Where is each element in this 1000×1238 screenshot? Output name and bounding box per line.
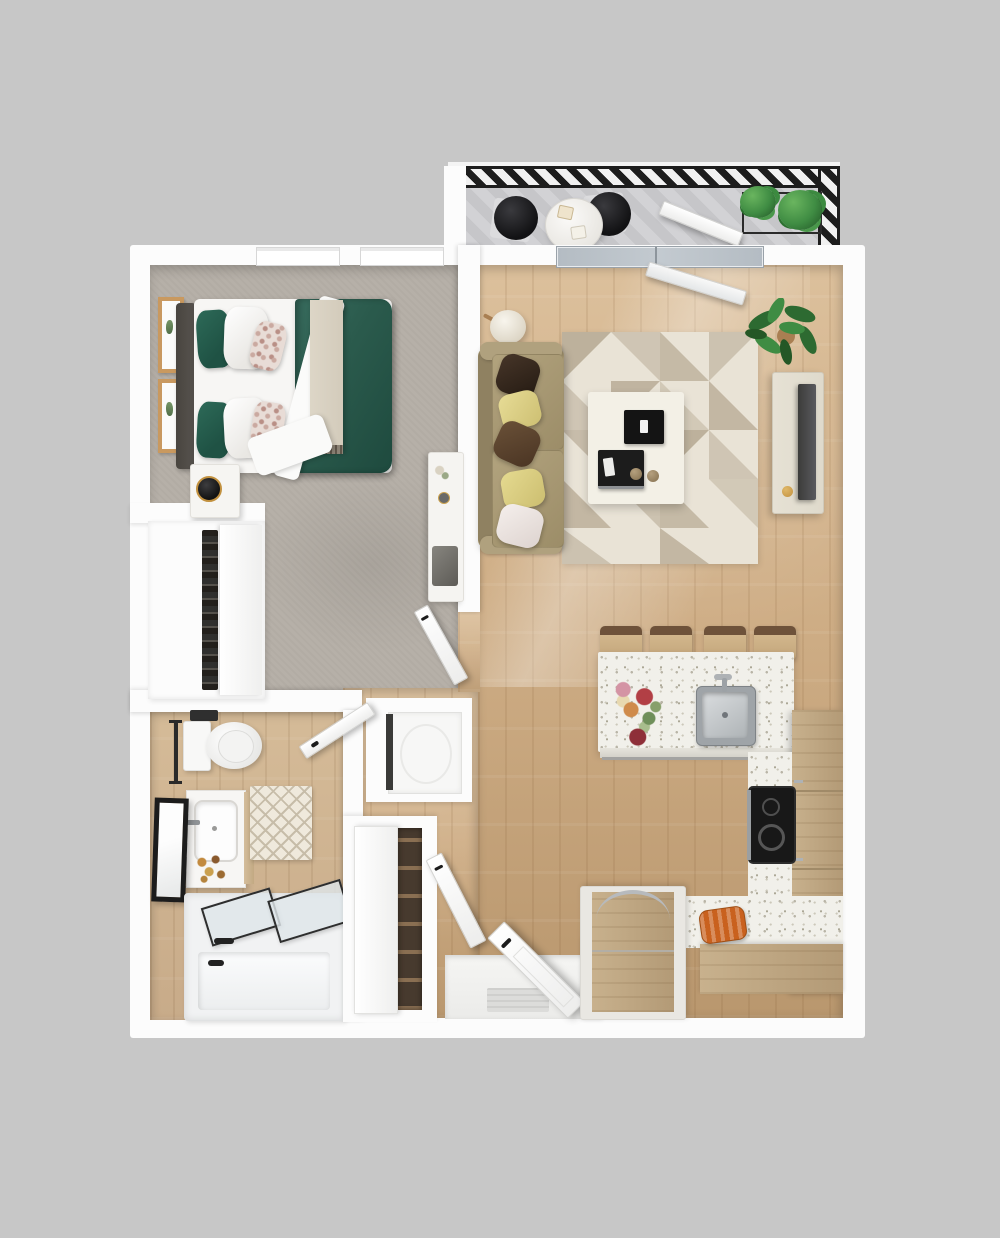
refrigerator-door-line [592, 950, 674, 952]
kitchen-faucet-stem [722, 678, 727, 692]
closet-door-panel [220, 525, 262, 695]
balcony [440, 158, 850, 258]
door-handle [421, 615, 429, 622]
counter-flower-bouquet [612, 678, 668, 750]
tv [798, 384, 816, 500]
door-handle [501, 937, 512, 948]
linen-closet-shelves [396, 828, 422, 1010]
bistro-chair [494, 196, 538, 240]
toilet-seat [218, 730, 254, 763]
tub-faucet [214, 938, 234, 944]
bed-headboard [176, 303, 196, 469]
desk-tablet [432, 546, 458, 586]
bedroom-window [360, 247, 444, 266]
sink-drain [212, 826, 217, 831]
potted-plant [742, 298, 826, 368]
floor-plan-render [0, 0, 1000, 1238]
closet-hanging-clothes [202, 530, 218, 690]
wall-art-sketch [166, 320, 173, 334]
decor-knob [647, 470, 659, 482]
balcony-left-wall [444, 166, 466, 254]
planter-plant [778, 190, 822, 230]
coffee-cup [557, 205, 574, 221]
leaning-mirror [151, 797, 189, 902]
towel-bar-cap [169, 720, 182, 723]
base-cabinets-bottom [700, 944, 843, 994]
washer-door-gap [386, 714, 393, 790]
coffee-cup [570, 225, 587, 240]
vanity-flowers [194, 852, 230, 886]
cabinet-gap-line [792, 868, 843, 870]
cooktop-rail [747, 790, 751, 860]
desk-clock-dot [438, 492, 450, 504]
bed [176, 299, 392, 473]
decor-knob [630, 468, 642, 480]
planter-plant [740, 186, 776, 218]
linen-closet-door-panel [354, 826, 398, 1014]
balcony-railing-top [452, 166, 840, 188]
vanity-faucet [186, 820, 200, 825]
console-decor-gold [782, 486, 793, 497]
cabinet-gap-line [792, 790, 843, 792]
washer-door-ring [400, 724, 452, 784]
towel-bar-cap [169, 781, 182, 784]
floor-lamp-shade [490, 310, 526, 344]
sofa [478, 344, 566, 550]
potted-plant-leaves [742, 298, 826, 368]
wall-art-sketch [166, 402, 173, 416]
bread-board [698, 905, 748, 945]
towel-bar [174, 721, 178, 783]
alarm-clock [196, 476, 222, 502]
cabinet-handle [794, 858, 803, 861]
sink-drain [722, 712, 728, 718]
bathroom-shelf [190, 710, 218, 721]
door-handle [434, 864, 443, 871]
cooktop-burner-large [758, 824, 785, 851]
cooktop-burner-small [762, 798, 780, 816]
desk-flowers [434, 464, 450, 482]
coffee-table-book-logo [640, 420, 648, 433]
door-handle [310, 740, 319, 748]
bedroom-closet [148, 521, 265, 699]
bedroom-window [256, 247, 340, 266]
bistro-table [545, 198, 603, 252]
tub-faucet-handle [208, 960, 224, 966]
cabinet-handle [794, 780, 803, 783]
bath-rug [250, 786, 312, 860]
